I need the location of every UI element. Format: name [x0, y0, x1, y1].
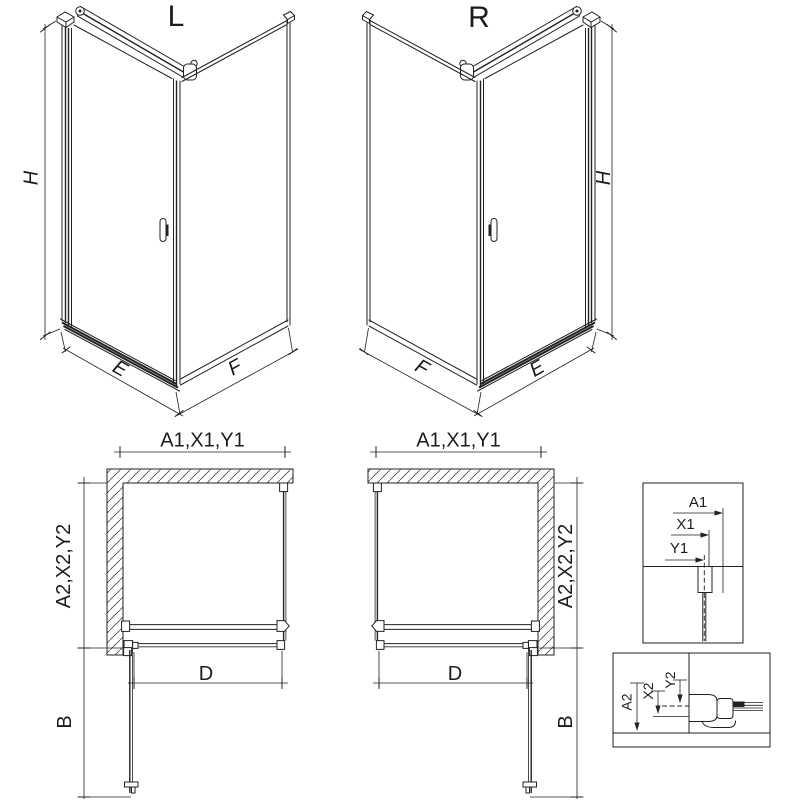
iso-view-left	[41, 7, 299, 417]
detail-label-x2: X2	[640, 682, 656, 699]
profile-clamp	[717, 699, 733, 719]
dim-label-h-left: H	[21, 170, 43, 185]
dim-label-d-left-plan: D	[199, 663, 213, 685]
dim-label-a2-right-plan: A2,X2,Y2	[555, 524, 577, 609]
drawing-canvas: L R H H E F F E A1,X1,Y1 A1,X1,Y1 A2,X2,…	[0, 0, 800, 800]
detail-label-y1: Y1	[670, 540, 688, 557]
variant-label-right: R	[468, 1, 490, 34]
wall-profile-section	[698, 567, 712, 593]
wall-hatch-right-plan	[368, 469, 554, 655]
dim-label-f-left: F	[224, 354, 247, 380]
dim-label-a1-right-plan: A1,X1,Y1	[416, 430, 501, 452]
wall-hatch-left-plan	[107, 469, 293, 655]
detail-label-y2: Y2	[662, 671, 678, 688]
dim-label-h-right: H	[593, 170, 615, 185]
detail-box-floor-profile	[613, 653, 770, 747]
detail-label-a2: A2	[619, 693, 635, 710]
dim-label-e-right: E	[526, 356, 549, 382]
dim-label-b-right-plan: B	[555, 715, 577, 728]
detail-label-x1: X1	[676, 516, 694, 533]
variant-label-left: L	[168, 0, 185, 33]
dim-label-e-left: E	[109, 356, 132, 382]
iso-view-right	[359, 7, 617, 417]
shower-enclosure-technical-drawing: L R H H E F F E A1,X1,Y1 A1,X1,Y1 A2,X2,…	[0, 0, 800, 800]
dim-label-d-right-plan: D	[448, 663, 462, 685]
floor-profile-body	[689, 695, 717, 722]
dim-label-a2-left-plan: A2,X2,Y2	[53, 524, 75, 609]
detail-label-a1: A1	[689, 494, 707, 511]
dim-label-a1-left-plan: A1,X1,Y1	[160, 430, 245, 452]
dim-label-b-left-plan: B	[54, 715, 76, 728]
dim-label-f-right: F	[411, 355, 434, 381]
